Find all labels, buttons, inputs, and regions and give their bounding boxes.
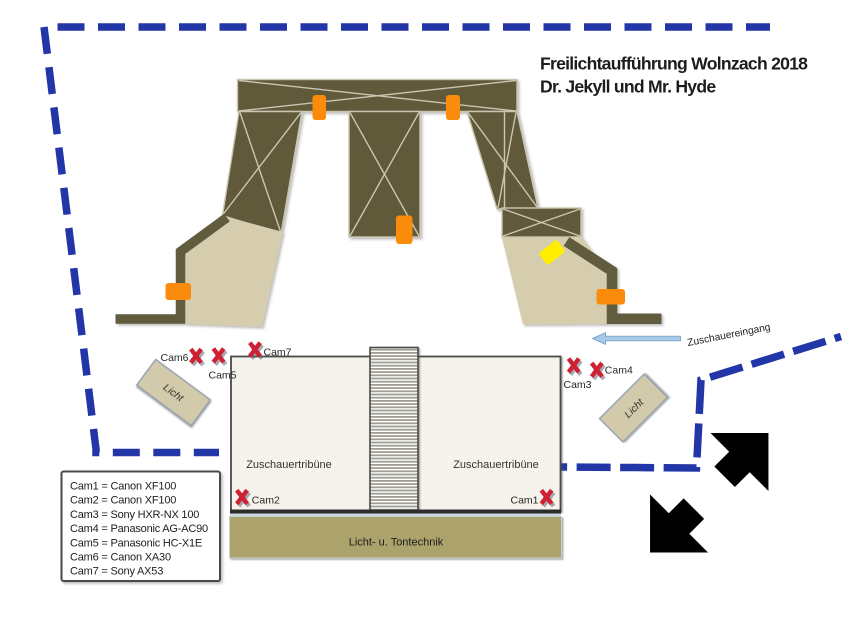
svg-text:Dr. Jekyll und Mr. Hyde: Dr. Jekyll und Mr. Hyde	[540, 76, 716, 96]
svg-text:Cam5: Cam5	[209, 369, 237, 381]
svg-text:Cam3 = Sony HXR-NX 100: Cam3 = Sony HXR-NX 100	[70, 509, 199, 521]
svg-text:Cam5 = Panasonic HC-X1E: Cam5 = Panasonic HC-X1E	[70, 537, 202, 549]
svg-text:Cam1 = Canon XF100: Cam1 = Canon XF100	[70, 481, 176, 493]
svg-text:Freilichtaufführung Wolnzach 2: Freilichtaufführung Wolnzach 2018	[540, 54, 808, 74]
svg-text:Cam2: Cam2	[252, 494, 280, 506]
svg-text:Cam7 = Sony AX53: Cam7 = Sony AX53	[70, 566, 163, 578]
svg-text:Zuschauertribüne: Zuschauertribüne	[246, 459, 332, 471]
svg-text:Cam1: Cam1	[510, 494, 538, 506]
svg-text:Cam6 = Canon XA30: Cam6 = Canon XA30	[70, 552, 171, 564]
svg-text:Zuschauereingang: Zuschauereingang	[686, 322, 771, 349]
svg-text:Cam4 = Panasonic AG-AC90: Cam4 = Panasonic AG-AC90	[70, 523, 208, 535]
svg-text:Cam6: Cam6	[161, 352, 189, 364]
svg-text:Cam2 = Canon XF100: Cam2 = Canon XF100	[70, 495, 176, 507]
svg-text:Cam7: Cam7	[264, 346, 292, 358]
svg-text:Zuschauertribüne: Zuschauertribüne	[453, 459, 539, 471]
svg-text:Cam3: Cam3	[564, 379, 592, 391]
svg-text:Licht- u. Tontechnik: Licht- u. Tontechnik	[349, 537, 444, 549]
svg-text:Cam4: Cam4	[605, 365, 633, 377]
